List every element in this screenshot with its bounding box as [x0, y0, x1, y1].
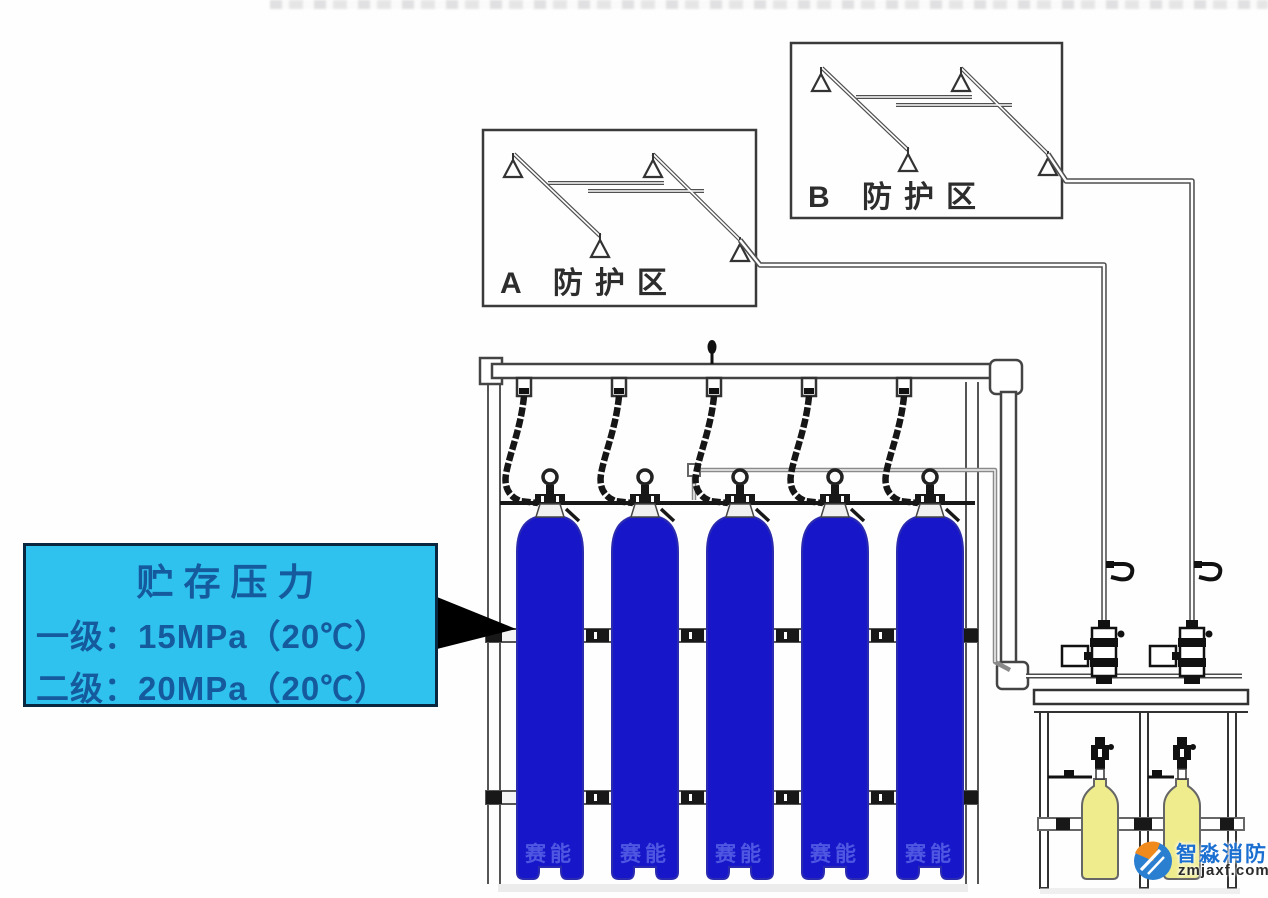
- storage-pressure-callout: 贮存压力 一级：15MPa（20℃） 二级：20MPa（20℃）: [23, 543, 438, 707]
- cylinder-valve-and-hose: [791, 378, 864, 521]
- storage-cylinder: [707, 515, 773, 879]
- zone-b-label: B 防护区: [808, 172, 988, 216]
- cylinder-valve-and-hose: [506, 378, 579, 521]
- storage-cylinder: [612, 515, 678, 879]
- manifold-header-pipe: [480, 358, 1022, 394]
- pilot-link-fitting: [1152, 770, 1162, 777]
- cylinder-brand-watermark: 赛能: [515, 838, 585, 868]
- pressure-switch-icon: [708, 340, 717, 364]
- starter-cylinder-a: [1082, 779, 1118, 879]
- cylinder-valve-and-hose: [601, 378, 674, 521]
- site-watermark: 智淼消防 zmjaxf.com: [1130, 836, 1268, 892]
- watermark-site-text: zmjaxf.com: [1178, 862, 1268, 879]
- starter-strap: [1038, 818, 1244, 830]
- cylinder-brand-watermark: 赛能: [800, 838, 870, 868]
- callout-line1: 一级：15MPa（20℃）: [26, 610, 435, 658]
- callout-title: 贮存压力: [26, 552, 435, 606]
- storage-cylinder: [517, 515, 583, 879]
- storage-cylinder: [897, 515, 963, 879]
- signal-feedback-device-a: [1106, 561, 1132, 579]
- cylinder-valve-and-hose: [696, 378, 769, 521]
- cylinder-brand-watermark: 赛能: [895, 838, 965, 868]
- signal-feedback-device-b: [1194, 561, 1220, 579]
- cylinder-brand-watermark: 赛能: [705, 838, 775, 868]
- cylinder-brand-watermark: 赛能: [610, 838, 680, 868]
- fire-suppression-system-diagram: A 防护区 B 防护区 贮存压力 一级：15MPa（20℃） 二级：20MPa（…: [0, 0, 1268, 898]
- cylinder-valve-and-hose: [886, 378, 959, 521]
- floor-shadow: [498, 884, 968, 892]
- callout-line2: 二级：20MPa（20℃）: [26, 662, 435, 710]
- storage-cylinder: [802, 515, 868, 879]
- starter-solenoid-a: [1091, 737, 1114, 779]
- zone-a-label: A 防护区: [500, 258, 679, 302]
- starter-solenoid-b: [1173, 737, 1196, 779]
- pilot-link-fitting: [1064, 770, 1074, 777]
- schematic-linework: [0, 0, 1268, 898]
